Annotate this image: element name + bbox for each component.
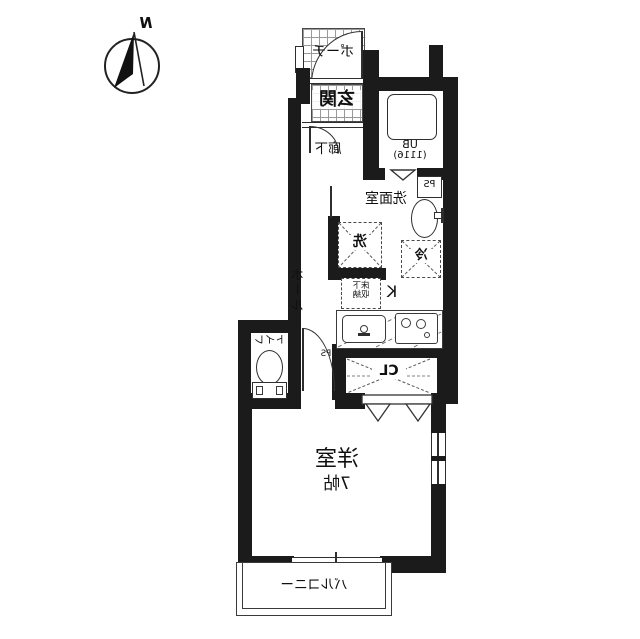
entrance-label: 玄関 bbox=[312, 90, 362, 109]
kitchen-faucet-stem bbox=[358, 333, 370, 336]
floor-storage-line2: 収納 bbox=[343, 291, 379, 300]
wall bbox=[443, 77, 458, 367]
main-room-name: 洋室 bbox=[288, 448, 386, 472]
kitchen-label: K bbox=[380, 283, 404, 300]
refrigerator-label: 冷 bbox=[408, 249, 434, 263]
toilet-tank-detail bbox=[256, 386, 263, 395]
toilet-label: トイレ bbox=[248, 335, 292, 346]
compass-icon bbox=[100, 26, 166, 98]
washroom-door-line bbox=[330, 186, 332, 218]
stove-burner bbox=[416, 319, 426, 329]
wall bbox=[238, 393, 252, 573]
floor-plan: N UB (1116) PS 洗面室 bbox=[0, 0, 640, 639]
folding-door-icon bbox=[358, 394, 436, 424]
faucet-stem bbox=[441, 208, 444, 223]
window-line bbox=[437, 433, 439, 456]
north-label: N bbox=[136, 14, 156, 32]
toilet-tank-detail bbox=[276, 386, 283, 395]
main-room-size-label: 7帖 bbox=[288, 475, 386, 493]
hall-door-arc bbox=[303, 328, 335, 391]
pipe-space-hall-label: PS bbox=[315, 350, 337, 359]
window bbox=[431, 461, 446, 484]
wall bbox=[363, 168, 385, 180]
window bbox=[431, 433, 446, 456]
stove-burner-small bbox=[424, 332, 430, 338]
washing-machine-label: 洗 bbox=[347, 235, 373, 250]
kitchen-faucet-icon bbox=[360, 325, 368, 333]
wall bbox=[429, 45, 443, 79]
closet-label: CL bbox=[372, 364, 406, 379]
balcony-label: バルコニー bbox=[256, 578, 372, 593]
main-room-label: 洋室 7帖 bbox=[288, 448, 386, 493]
unit-bath-line2: (1116) bbox=[381, 151, 439, 162]
floor-storage-label: 床下 収納 bbox=[343, 282, 379, 300]
hall-door-leaf bbox=[302, 328, 304, 391]
wall bbox=[363, 50, 379, 172]
unit-bath-label: UB (1116) bbox=[381, 139, 439, 162]
bathtub-icon bbox=[387, 94, 437, 140]
stove-burner bbox=[401, 318, 411, 328]
porch-label: ポーチ bbox=[304, 45, 362, 60]
hall-label: ホール bbox=[293, 244, 315, 336]
toilet-bowl-icon bbox=[256, 350, 283, 385]
corridor-label: 廊下 bbox=[300, 142, 356, 157]
window-line bbox=[437, 461, 439, 484]
bath-door-icon bbox=[389, 168, 417, 182]
stove-icon bbox=[395, 313, 438, 344]
pipe-space-label: PS bbox=[418, 180, 441, 190]
